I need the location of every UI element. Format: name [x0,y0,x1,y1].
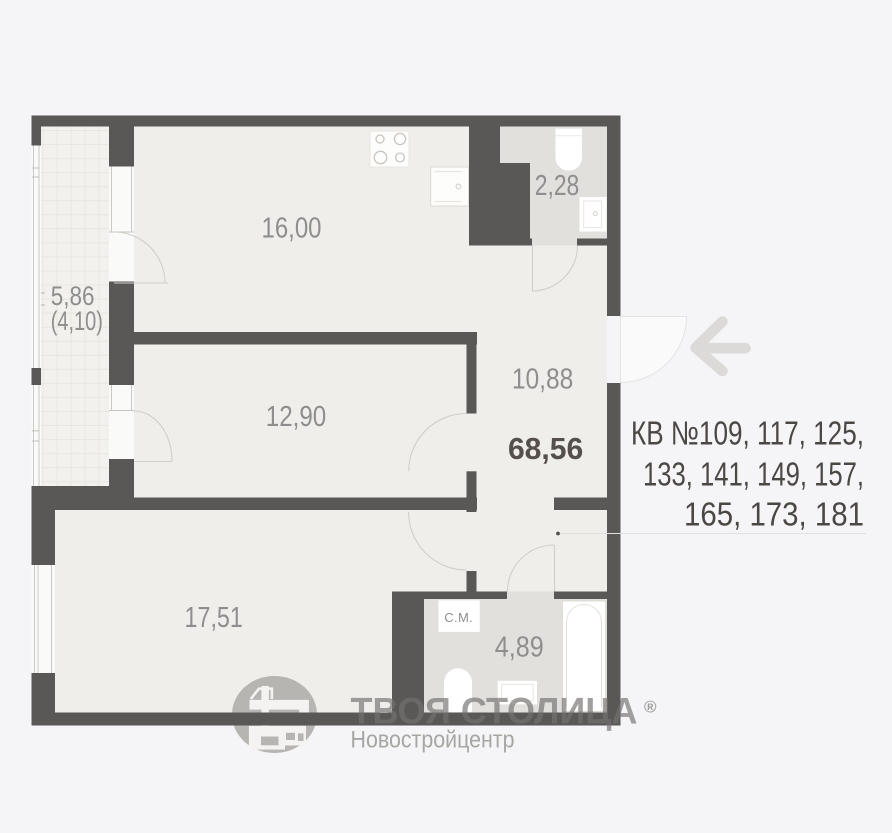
svg-text:165, 173, 181: 165, 173, 181 [684,497,864,534]
svg-text:®: ® [644,698,657,717]
svg-text:68,56: 68,56 [508,431,583,466]
svg-text:10,88: 10,88 [512,364,574,396]
svg-text:С.М.: С.М. [444,610,473,625]
svg-text:Новостройцентр: Новостройцентр [351,727,515,754]
svg-text:2,28: 2,28 [535,170,580,202]
svg-text:17,51: 17,51 [185,602,243,634]
svg-text:12,90: 12,90 [266,401,327,433]
svg-text:(4,10): (4,10) [51,306,103,336]
svg-text:4,89: 4,89 [495,632,544,664]
svg-text:16,00: 16,00 [262,213,322,245]
svg-text:КВ №109, 117, 125,: КВ №109, 117, 125, [631,416,864,453]
svg-text:133, 141, 149, 157,: 133, 141, 149, 157, [643,457,864,494]
